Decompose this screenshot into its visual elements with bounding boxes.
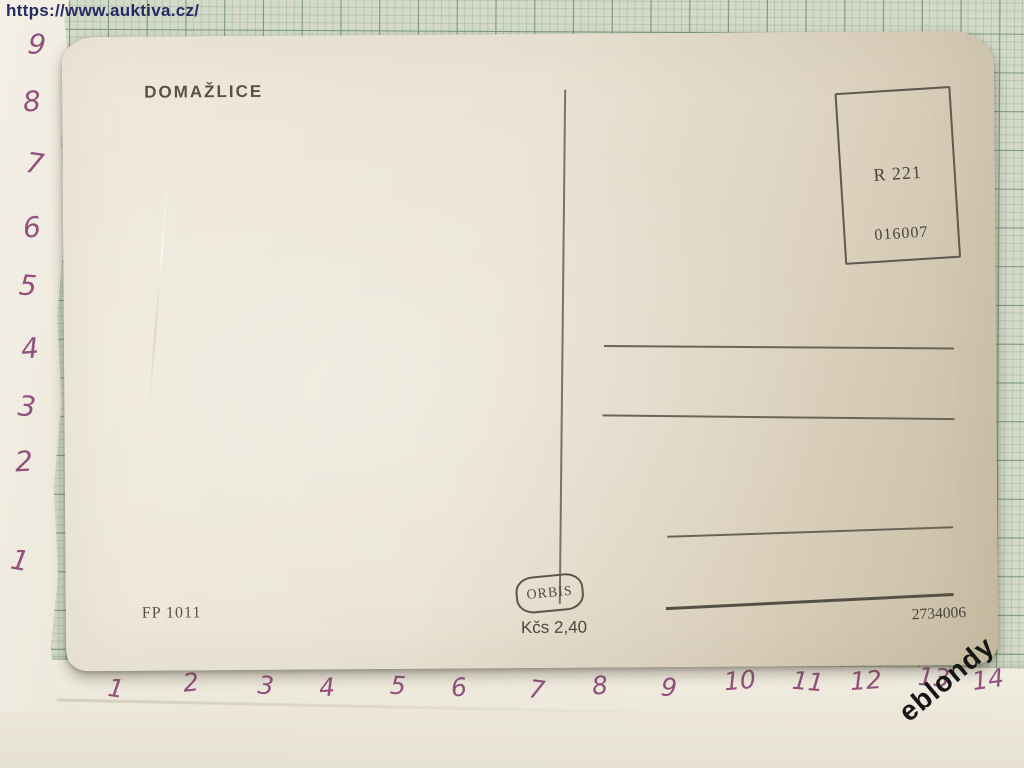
ruler-number-horizontal: 10	[723, 665, 757, 697]
orbis-logo-text: ORBIS	[526, 583, 574, 603]
ruler-number-vertical: 5	[18, 268, 38, 302]
center-divider-line	[559, 90, 566, 604]
postcard-title: DOMAŽLICE	[144, 82, 263, 103]
ruler-number-vertical: 9	[26, 27, 47, 62]
ruler-number-vertical: 6	[21, 210, 42, 245]
ruler-number-horizontal: 8	[591, 670, 610, 701]
ruler-number-horizontal: 9	[660, 672, 678, 702]
ruler-number-vertical: 4	[20, 331, 41, 365]
address-line	[604, 345, 954, 349]
stamp-box: R 221 016007	[834, 86, 961, 265]
address-line	[666, 593, 954, 610]
auction-site-url-watermark: https://www.auktiva.cz/	[6, 1, 199, 21]
order-code: FP 1011	[142, 604, 202, 622]
address-line	[602, 414, 954, 420]
control-number: 016007	[845, 222, 958, 247]
ruler-number-horizontal: 7	[527, 674, 546, 705]
ruler-number-horizontal: 12	[849, 665, 883, 696]
ruler-number-horizontal: 6	[450, 672, 468, 702]
print-number: 2734006	[911, 604, 966, 624]
ruler-number-horizontal: 5	[389, 671, 406, 701]
ruler-number-horizontal: 3	[257, 670, 275, 700]
orbis-publisher-logo: ORBIS	[514, 572, 585, 615]
registration-label: R 221	[841, 160, 954, 188]
paper-crease	[148, 177, 168, 406]
photo-scene: 9 8 7 6 5 4 3 2 1 1 2 3 4 5 6 7 8 9 10 1…	[0, 0, 1024, 768]
address-line	[667, 526, 953, 537]
postcard-back: DOMAŽLICE R 221 016007 FP 1011 ORBIS Kčs…	[62, 31, 998, 671]
ruler-number-horizontal: 11	[791, 666, 825, 698]
ruler-number-horizontal: 2	[182, 667, 201, 698]
ruler-number-vertical: 2	[14, 445, 34, 479]
price-label: Kčs 2,40	[521, 618, 587, 638]
ruler-number-vertical: 3	[17, 389, 38, 423]
ruler-number-horizontal: 4	[318, 672, 336, 702]
ruler-number-vertical: 8	[22, 84, 42, 118]
